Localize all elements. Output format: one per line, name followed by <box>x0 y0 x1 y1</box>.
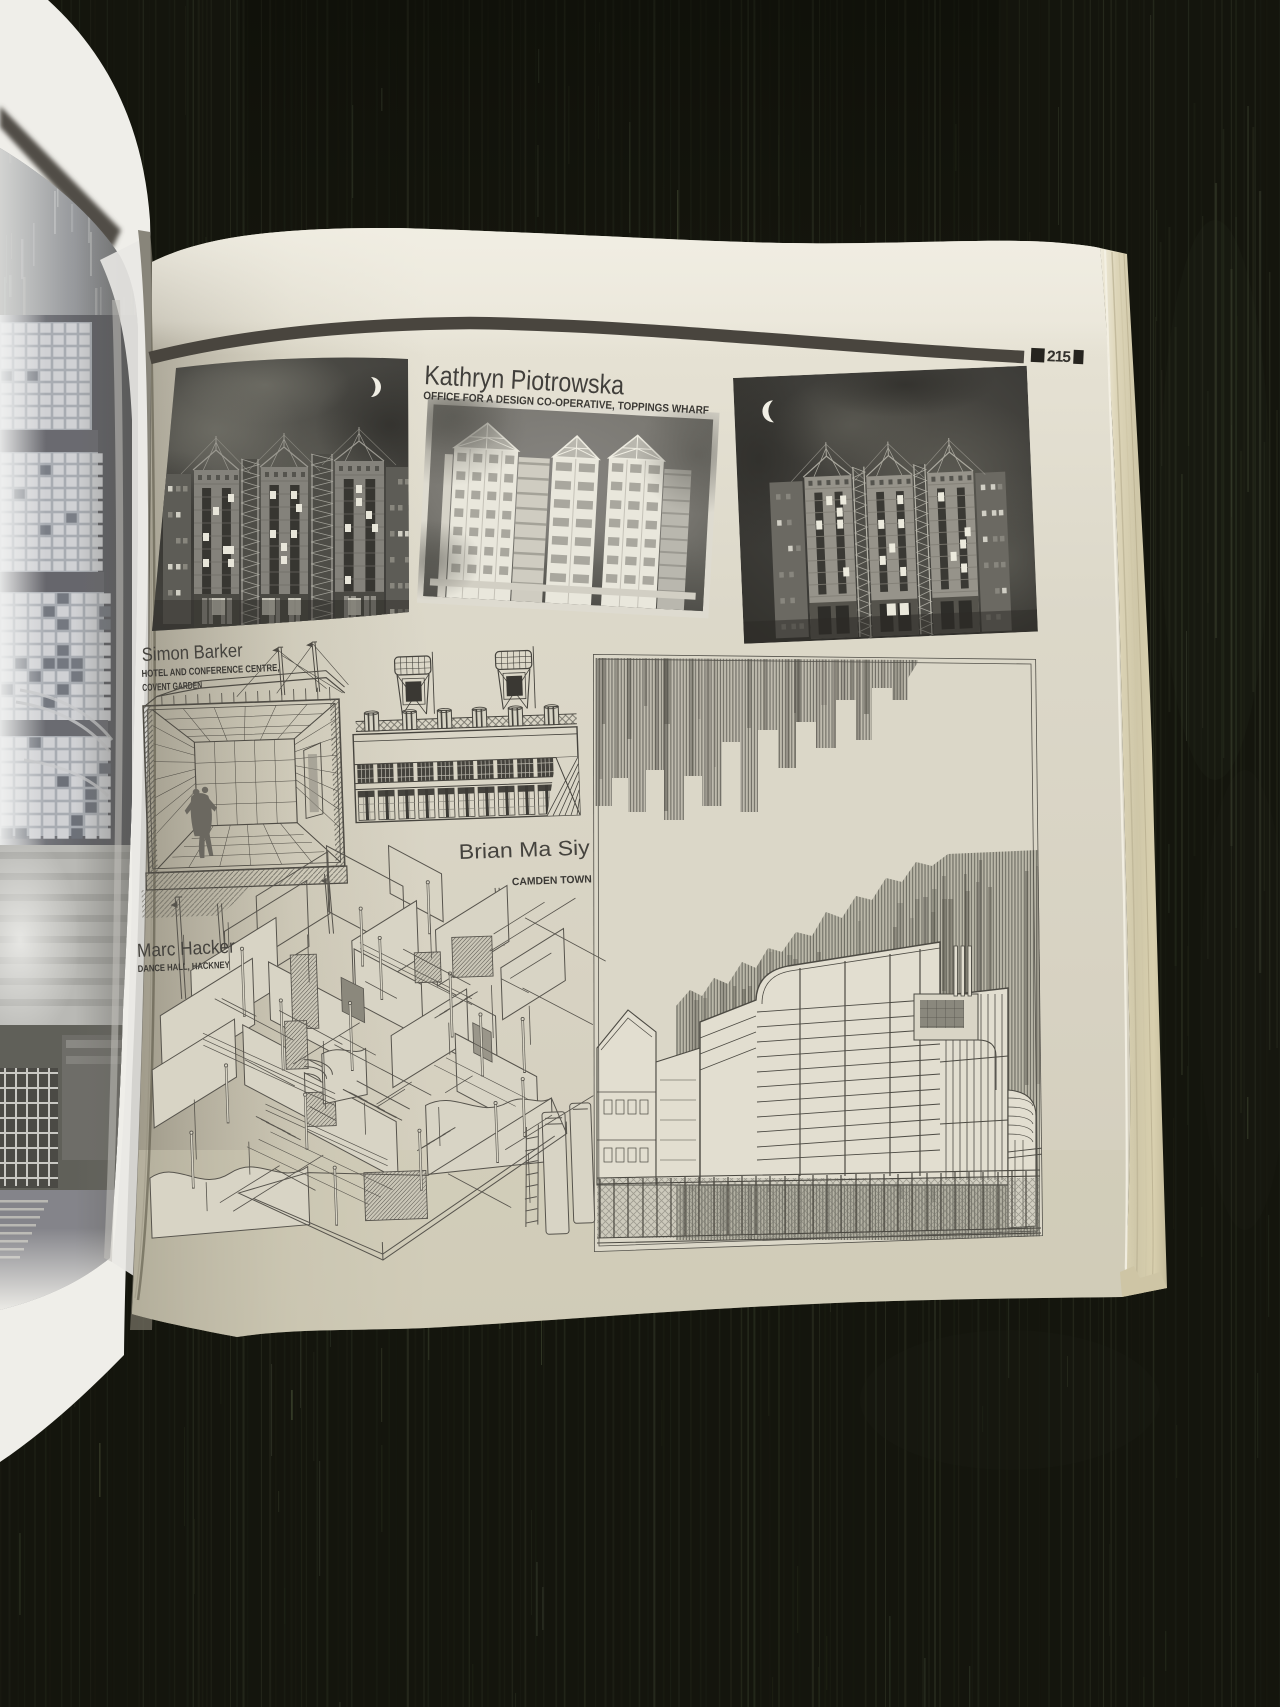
svg-text:Brian Ma Siy: Brian Ma Siy <box>458 836 590 864</box>
svg-text:Marc Hacker: Marc Hacker <box>137 937 236 962</box>
svg-text:215: 215 <box>1047 348 1072 366</box>
